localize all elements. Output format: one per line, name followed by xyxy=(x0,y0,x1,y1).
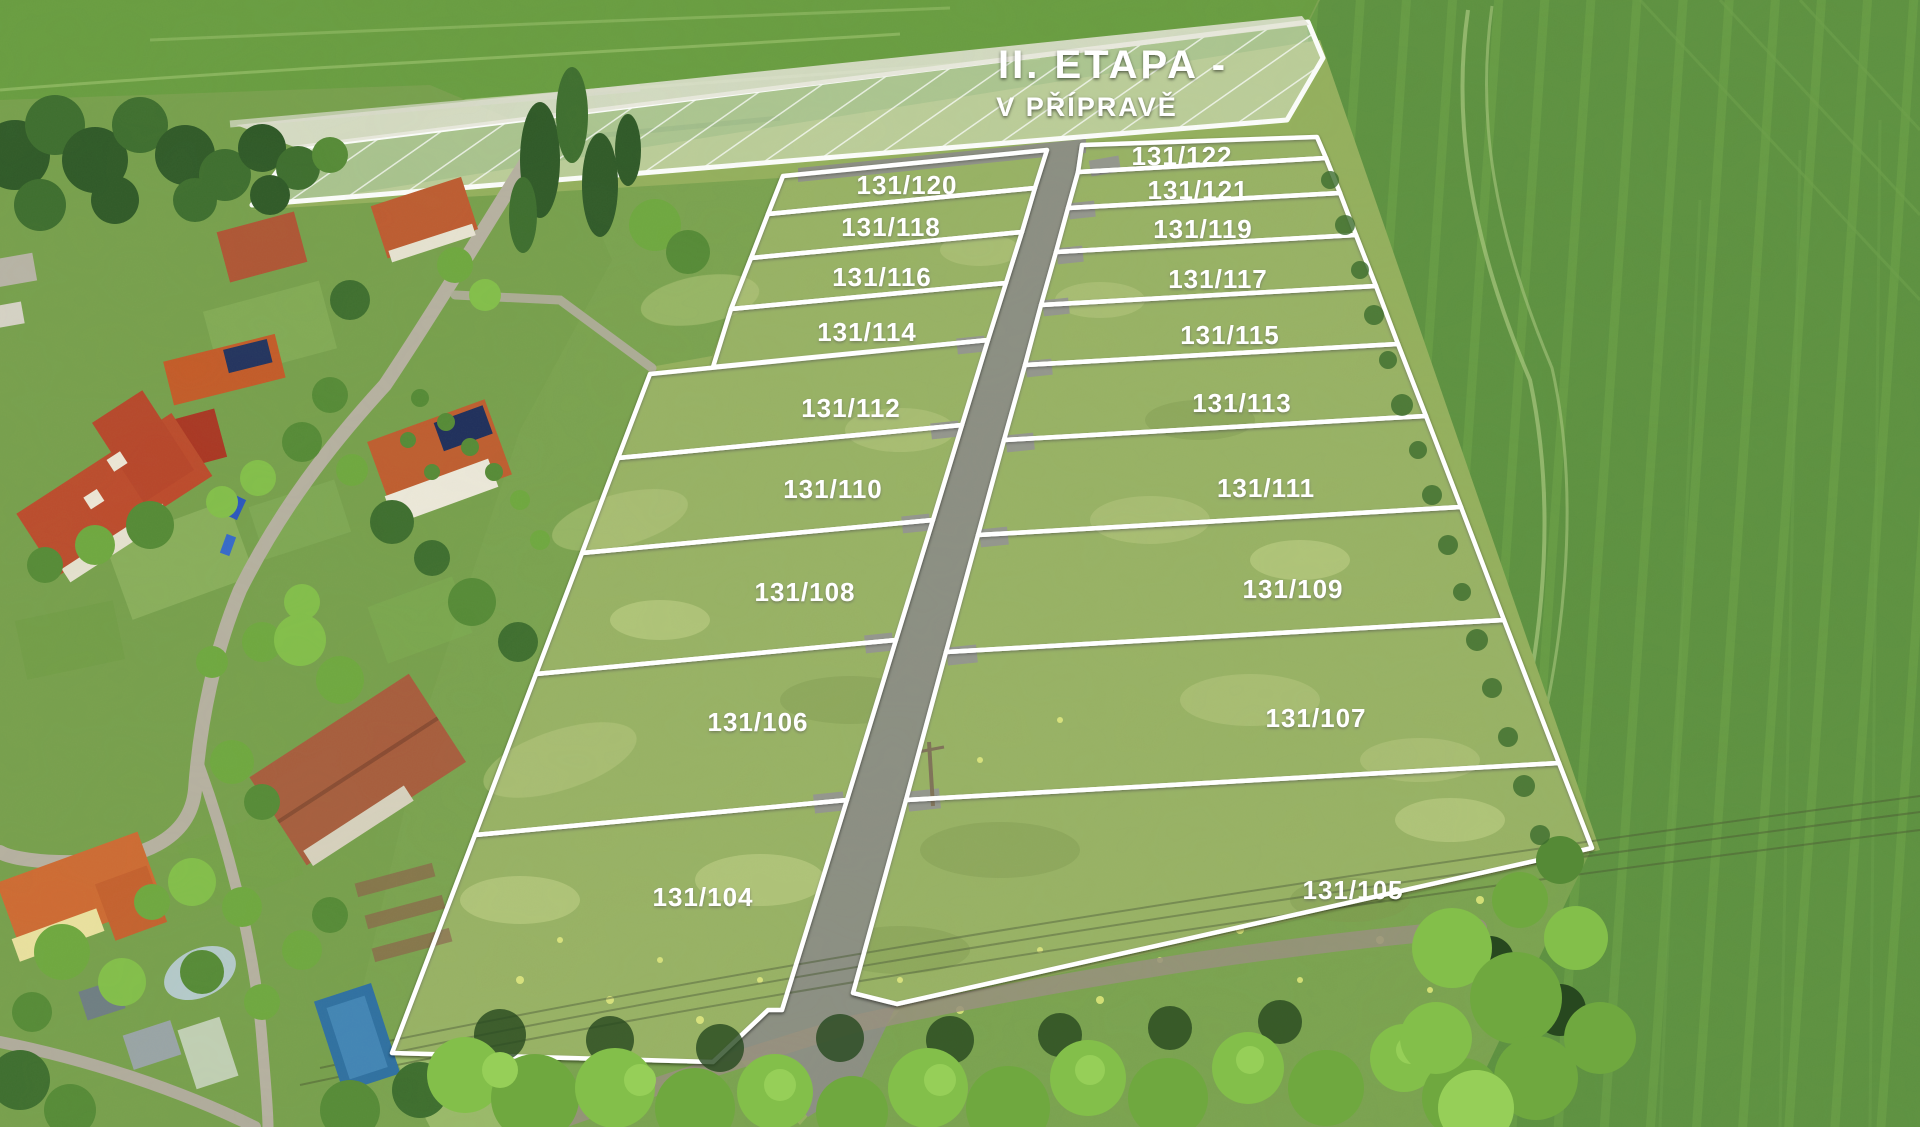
parcel-label: 131/104 xyxy=(653,882,754,912)
parcel-label: 131/109 xyxy=(1243,574,1344,604)
aerial-site-plan: 131/120 131/118 131/116 131/114 131/112 … xyxy=(0,0,1920,1127)
parcel-label: 131/105 xyxy=(1303,875,1404,905)
parcel-label: 131/117 xyxy=(1168,264,1268,294)
parcel-label: 131/114 xyxy=(817,317,917,347)
parcel-label: 131/106 xyxy=(708,707,809,737)
parcel-label: 131/112 xyxy=(801,393,901,423)
parcel-label: 131/115 xyxy=(1180,320,1280,350)
phase-banner-title: II. ETAPA - xyxy=(998,43,1228,87)
parcel-label: 131/113 xyxy=(1192,388,1292,418)
parcel-label: 131/118 xyxy=(841,212,941,242)
parcel-label: 131/108 xyxy=(755,577,856,607)
parcel-label: 131/107 xyxy=(1266,703,1367,733)
parcel-label: 131/116 xyxy=(832,262,932,292)
phase-banner-subtitle: V PŘÍPRAVĚ xyxy=(996,91,1178,122)
parcel-label: 131/111 xyxy=(1217,473,1315,503)
parcel-label: 131/110 xyxy=(783,474,883,504)
